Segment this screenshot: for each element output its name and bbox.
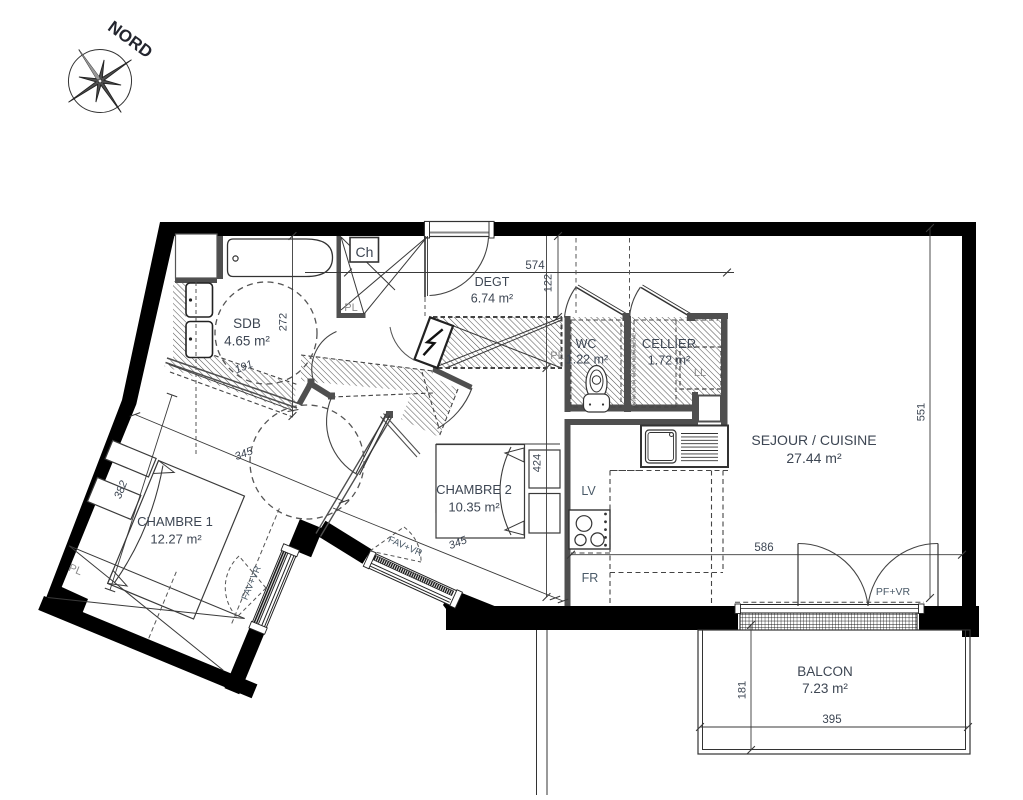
svg-text:Ch: Ch: [356, 244, 374, 260]
svg-text:PF+VR: PF+VR: [876, 586, 911, 598]
svg-text:12.27 m²: 12.27 m²: [150, 532, 202, 547]
svg-text:395: 395: [822, 714, 841, 726]
svg-text:SDB: SDB: [233, 316, 261, 331]
svg-text:CHAMBRE 1: CHAMBRE 1: [137, 514, 213, 529]
svg-text:LL: LL: [694, 367, 706, 379]
svg-text:1.72 m²: 1.72 m²: [648, 354, 690, 368]
svg-text:6.74 m²: 6.74 m²: [471, 292, 513, 306]
svg-text:CELLIER: CELLIER: [642, 336, 696, 351]
svg-text:BALCON: BALCON: [797, 664, 853, 679]
svg-text:4.65 m²: 4.65 m²: [224, 334, 270, 349]
svg-text:272: 272: [278, 313, 290, 331]
svg-text:551: 551: [916, 403, 928, 421]
svg-text:122: 122: [543, 274, 555, 292]
svg-text:424: 424: [532, 454, 544, 472]
svg-text:PL: PL: [550, 350, 563, 362]
svg-text:DEGT: DEGT: [475, 275, 510, 289]
svg-text:CHAMBRE 2: CHAMBRE 2: [436, 482, 512, 497]
svg-text:cloison démontable: cloison démontable: [628, 332, 638, 406]
svg-text:181: 181: [737, 681, 749, 699]
svg-text:586: 586: [754, 542, 773, 554]
svg-text:SEJOUR / CUISINE: SEJOUR / CUISINE: [751, 432, 876, 448]
svg-text:FR: FR: [582, 571, 599, 585]
svg-text:27.44 m²: 27.44 m²: [786, 450, 842, 466]
svg-text:LV: LV: [581, 484, 596, 498]
svg-text:PL: PL: [344, 302, 357, 314]
svg-text:WC: WC: [576, 337, 597, 351]
svg-text:1.22 m²: 1.22 m²: [566, 353, 608, 367]
svg-text:7.23 m²: 7.23 m²: [802, 681, 848, 696]
svg-text:574: 574: [525, 260, 545, 272]
svg-text:10.35 m²: 10.35 m²: [448, 500, 500, 515]
